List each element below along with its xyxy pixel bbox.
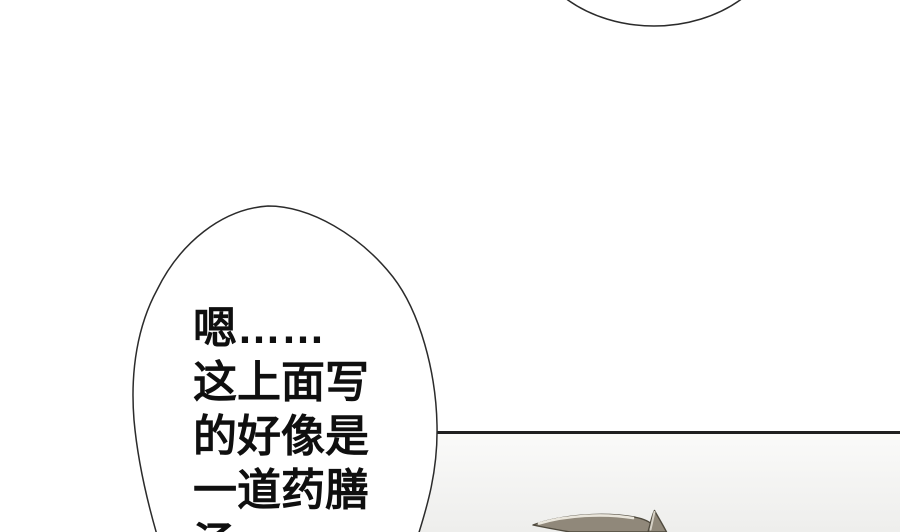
manga-panel-page: 嗯…… 这上面写 的好像是 一道药膳 汤 bbox=[0, 0, 900, 532]
speech-line-4: 一道药膳 bbox=[193, 464, 369, 518]
speech-bubble-text: 嗯…… 这上面写 的好像是 一道药膳 汤 bbox=[193, 302, 369, 532]
panel-artwork bbox=[0, 0, 900, 532]
top-speech-bubble-partial bbox=[527, 0, 781, 26]
speech-line-1: 嗯…… bbox=[193, 302, 369, 356]
speech-line-3: 的好像是 bbox=[193, 410, 369, 464]
character-hair bbox=[533, 511, 667, 532]
speech-line-2: 这上面写 bbox=[193, 356, 369, 410]
hair-lock bbox=[533, 514, 654, 532]
speech-line-5: 汤 bbox=[193, 518, 369, 532]
